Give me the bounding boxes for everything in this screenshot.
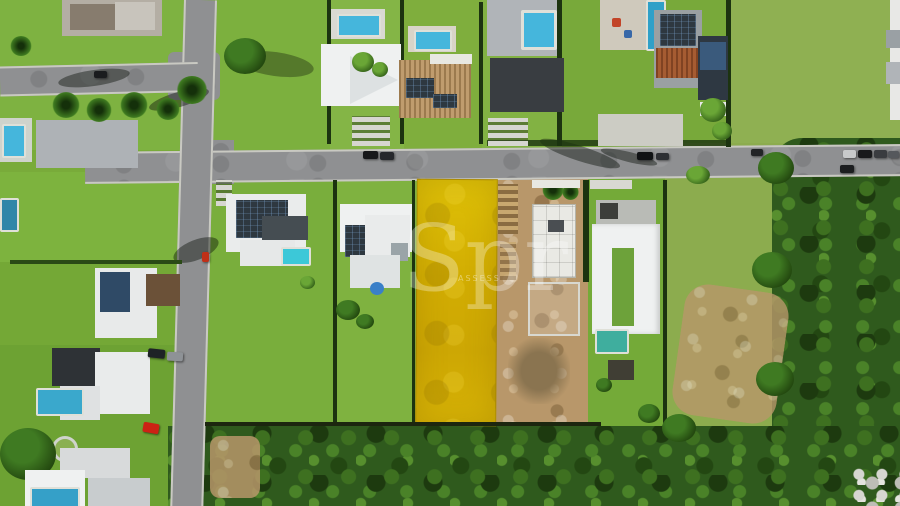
courtyard — [612, 248, 634, 326]
house-roof — [430, 54, 472, 64]
tree — [596, 378, 612, 392]
corner-lot-tree — [224, 38, 266, 74]
pergola — [608, 360, 634, 380]
car — [858, 150, 872, 158]
swimming-pool — [414, 30, 452, 51]
forest-bottom — [168, 426, 900, 506]
hedge — [479, 2, 483, 144]
lounge-chair — [624, 30, 632, 38]
solar-panels — [660, 14, 696, 46]
dirt-patch-field — [669, 281, 791, 426]
pool-deck — [600, 0, 648, 50]
house-roof-dark — [52, 348, 100, 386]
palm-tree — [86, 98, 112, 122]
house-roof — [70, 4, 115, 30]
field-top-right — [728, 0, 900, 150]
house-roof — [115, 2, 155, 30]
lawn-left-lot — [0, 172, 188, 264]
swimming-pool-teal — [595, 329, 629, 354]
hedge — [663, 180, 667, 426]
building-roof — [886, 62, 900, 84]
red-object — [202, 252, 209, 262]
palm-tree — [10, 36, 32, 56]
watermark-subtext: ASSESS — [458, 274, 501, 283]
hedge-horizontal — [10, 260, 182, 264]
swimming-pool — [2, 124, 26, 158]
water-tank — [370, 282, 384, 295]
hedge — [583, 180, 589, 282]
house-roof — [36, 120, 138, 168]
forest-edge-tree — [756, 362, 794, 396]
forest-edge-tree — [758, 152, 794, 184]
tree — [372, 62, 388, 77]
car — [843, 150, 856, 158]
aerial-photo: Spr ASSESS — [0, 0, 900, 506]
driveway — [488, 118, 528, 146]
palm-tree — [120, 92, 148, 118]
path — [590, 180, 632, 189]
car — [751, 149, 763, 156]
tree — [686, 166, 710, 184]
car — [148, 348, 166, 359]
swimming-pool — [36, 388, 84, 416]
house-roof — [88, 478, 150, 506]
car — [167, 352, 183, 362]
tree — [700, 98, 726, 122]
construction-wall — [532, 180, 580, 188]
swimming-pool — [337, 14, 381, 37]
tree — [356, 314, 374, 329]
building-roof — [890, 0, 900, 120]
solar-panels — [406, 78, 434, 98]
car — [94, 71, 107, 78]
car — [888, 151, 899, 158]
forest-edge-tree — [752, 252, 792, 288]
house-roof-dark — [262, 216, 308, 240]
tree — [352, 52, 374, 72]
car — [380, 152, 394, 160]
palm-tree — [176, 76, 208, 104]
swimming-pool — [30, 487, 80, 506]
swimming-pool — [281, 247, 311, 266]
shrub — [300, 276, 315, 289]
lounge-chair — [612, 18, 621, 27]
solar-panels — [345, 225, 367, 257]
car — [637, 152, 653, 160]
shed-roof — [146, 274, 180, 306]
car — [874, 150, 887, 158]
house-roof-dark — [490, 58, 564, 112]
tree — [638, 404, 660, 423]
palm-tree — [156, 98, 180, 120]
forest-finger — [662, 414, 696, 442]
rocks-bottom-right — [852, 468, 900, 506]
solar-panels — [100, 272, 130, 312]
solar-panels — [433, 94, 457, 108]
car — [656, 153, 669, 160]
solar-panels — [700, 42, 726, 70]
hedge — [333, 180, 337, 422]
fence-bottom — [205, 422, 601, 426]
house-roof — [95, 352, 150, 414]
excavation — [508, 338, 570, 404]
swimming-pool — [0, 198, 19, 232]
palm-tree — [52, 92, 80, 118]
driveway — [352, 116, 390, 146]
tree — [712, 122, 732, 140]
car — [363, 151, 378, 159]
swimming-pool — [521, 10, 557, 50]
terrace-detail — [600, 203, 618, 219]
house-roof-terracotta — [656, 48, 700, 78]
driveway — [598, 114, 683, 146]
dirt-patch-forest — [210, 436, 260, 498]
watermark-text: Spr — [402, 213, 568, 305]
car — [840, 165, 854, 173]
building-roof — [886, 30, 900, 48]
